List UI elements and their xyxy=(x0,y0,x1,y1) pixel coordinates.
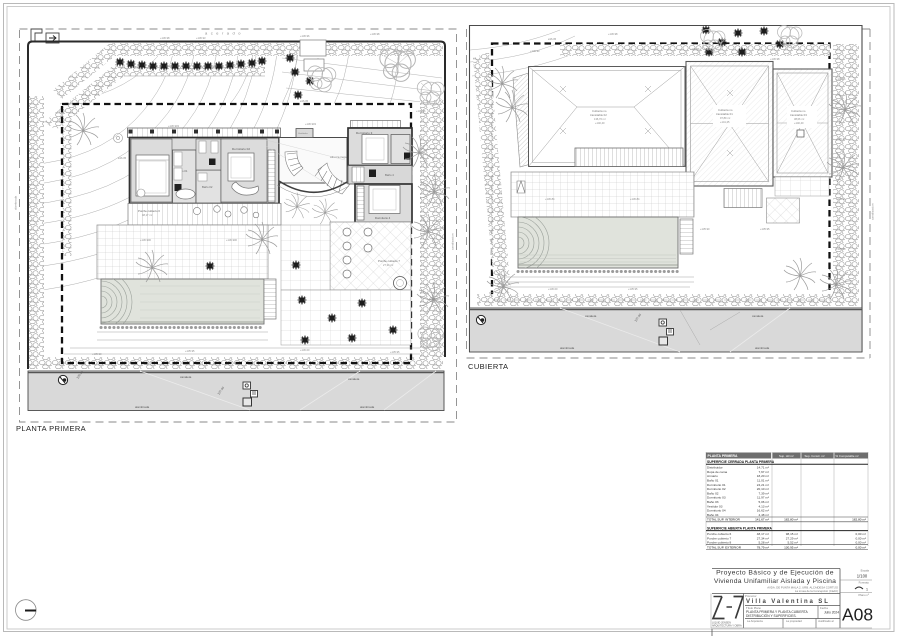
svg-text:Julio 2024: Julio 2024 xyxy=(824,611,839,615)
svg-text:5,28 m²: 5,28 m² xyxy=(759,541,770,545)
svg-text:Vivienda Unifamiliar Aislada y: Vivienda Unifamiliar Aislada y Piscina xyxy=(714,578,836,585)
svg-text:Baño 4: Baño 4 xyxy=(385,173,394,177)
svg-text:Villa Valentina SL: Villa Valentina SL xyxy=(746,599,830,605)
svg-text:0,00 m²: 0,00 m² xyxy=(856,541,867,545)
svg-text:+136.40: +136.40 xyxy=(836,137,846,141)
svg-text:141,67 m²: 141,67 m² xyxy=(755,518,769,522)
svg-text:+136.903: +136.903 xyxy=(305,122,316,126)
svg-text:+136.93: +136.93 xyxy=(530,49,540,53)
svg-text:alambrada: alambrada xyxy=(360,405,375,409)
svg-text:Porche cubierto 6: Porche cubierto 6 xyxy=(138,209,160,213)
svg-text:SUPERFICIE CERRADA PLANTA PRIM: SUPERFICIE CERRADA PLANTA PRIMERA xyxy=(707,460,775,464)
svg-text:La propiedad: La propiedad xyxy=(786,619,802,623)
svg-text:ø16.05: ø16.05 xyxy=(300,99,309,103)
svg-text:CUBIERTA: CUBIERTA xyxy=(468,362,508,371)
svg-text:182,80 m²: 182,80 m² xyxy=(784,518,798,522)
svg-text:alambrada: alambrada xyxy=(755,346,770,350)
svg-text:alambrada: alambrada xyxy=(14,195,18,210)
svg-text:+136.93: +136.93 xyxy=(196,36,206,40)
svg-text:transitable 01: transitable 01 xyxy=(716,112,733,116)
svg-text:+136.96: +136.96 xyxy=(690,47,700,51)
svg-text:canaleta: canaleta xyxy=(348,377,360,381)
svg-text:+136.98: +136.98 xyxy=(160,36,170,40)
svg-text:Fecha: Fecha xyxy=(820,606,828,610)
svg-text:Promotor: Promotor xyxy=(745,594,757,598)
svg-text:Proyecto Básico y de Ejecución: Proyecto Básico y de Ejecución de xyxy=(716,570,834,577)
svg-text:4,48 m²: 4,48 m² xyxy=(759,513,770,517)
svg-text:182,80 m²: 182,80 m² xyxy=(852,518,866,522)
svg-text:DISTRIBUCIÓN Y SUPERFICIES.: DISTRIBUCIÓN Y SUPERFICIES. xyxy=(746,613,797,618)
svg-text:1: 1 xyxy=(866,588,868,592)
svg-text:% Computable m²: % Computable m² xyxy=(836,454,859,458)
svg-text:+135.96: +135.96 xyxy=(836,197,846,201)
svg-text:+135.90: +135.90 xyxy=(430,297,440,301)
svg-text:Porche cubierto 7: Porche cubierto 7 xyxy=(378,259,400,263)
svg-text:Porche cubierto 8: Porche cubierto 8 xyxy=(707,541,732,545)
svg-text:Baño 02: Baño 02 xyxy=(202,185,213,189)
svg-text:+135.90: +135.90 xyxy=(700,227,710,231)
svg-text:Sup. útil m²: Sup. útil m² xyxy=(779,454,794,458)
svg-text:canaleta: canaleta xyxy=(585,314,597,318)
svg-text:canaleta: canaleta xyxy=(180,375,192,379)
svg-text:Dormitorio 4: Dormitorio 4 xyxy=(375,216,391,220)
svg-text:transitable 03: transitable 03 xyxy=(790,113,807,117)
svg-text:Dormitorio 02: Dormitorio 02 xyxy=(232,147,250,151)
svg-text:+135.95: +135.95 xyxy=(760,227,770,231)
svg-text:+135.95: +135.95 xyxy=(390,350,400,354)
svg-text:+136.903: +136.903 xyxy=(168,124,179,128)
svg-text:+136.900: +136.900 xyxy=(226,238,237,242)
svg-text:+136.96: +136.96 xyxy=(300,34,310,38)
svg-text:+135.95: +135.95 xyxy=(185,349,195,353)
svg-text:Vestibular: Vestibular xyxy=(298,132,308,135)
svg-text:+136.98: +136.98 xyxy=(370,32,380,36)
svg-text:+136.96: +136.96 xyxy=(836,77,846,81)
svg-text:ø16.05: ø16.05 xyxy=(548,37,557,41)
svg-text:transitable 02: transitable 02 xyxy=(590,113,607,117)
svg-text:TOTAL SUP. EXTERIOR: TOTAL SUP. EXTERIOR xyxy=(707,545,742,549)
svg-text:A08: A08 xyxy=(842,605,873,625)
svg-text:+141,25: +141,25 xyxy=(720,120,730,124)
svg-text:0,00 m²: 0,00 m² xyxy=(856,545,867,549)
svg-text:+135.95: +135.95 xyxy=(628,287,638,291)
svg-text:Formato: Formato xyxy=(859,581,870,585)
svg-text:+140,40: +140,40 xyxy=(595,121,605,125)
svg-text:alambrada: alambrada xyxy=(560,346,575,350)
svg-text:PLANTA PRIMERA: PLANTA PRIMERA xyxy=(16,424,86,433)
svg-text:+136.84: +136.84 xyxy=(630,197,640,201)
svg-text:38,06 m²: 38,06 m² xyxy=(794,117,804,121)
svg-text:+136.98: +136.98 xyxy=(770,57,780,61)
svg-text:Baño 04: Baño 04 xyxy=(707,513,719,517)
svg-text:+140,40: +140,40 xyxy=(794,121,804,125)
svg-text:ø16.05: ø16.05 xyxy=(118,156,127,160)
svg-text:5,52 m²: 5,52 m² xyxy=(788,541,799,545)
svg-text:48,17 m²: 48,17 m² xyxy=(142,213,152,217)
svg-text:canalizacion: canalizacion xyxy=(871,203,875,220)
svg-text:78,79 m²: 78,79 m² xyxy=(757,545,769,549)
svg-text:alambrada: alambrada xyxy=(135,405,150,409)
svg-text:Escala: Escala xyxy=(861,569,870,573)
svg-text:130,95 m²: 130,95 m² xyxy=(784,545,798,549)
svg-text:+136.900: +136.900 xyxy=(140,238,151,242)
svg-text:+135.90: +135.90 xyxy=(92,352,102,356)
svg-text:SUPERFICIE ABIERTA PLANTA PRIM: SUPERFICIE ABIERTA PLANTA PRIMERA xyxy=(707,526,773,530)
svg-text:136,70 m²: 136,70 m² xyxy=(594,117,606,121)
svg-text:canaleta: canaleta xyxy=(752,314,764,318)
svg-text:La Arquitecta: La Arquitecta xyxy=(747,619,763,623)
svg-text:+136.00: +136.00 xyxy=(300,348,310,352)
svg-text:+136.98: +136.98 xyxy=(608,32,618,36)
svg-text:Sup. Constr. m²: Sup. Constr. m² xyxy=(805,454,825,458)
svg-text:27,34 m²: 27,34 m² xyxy=(383,263,393,267)
svg-text:acerado: acerado xyxy=(205,31,244,36)
svg-text:1/100: 1/100 xyxy=(857,574,868,579)
svg-text:97,89 m²: 97,89 m² xyxy=(720,116,730,120)
svg-text:La Línea de la Concepción (Cád: La Línea de la Concepción (Cádiz) xyxy=(795,589,838,593)
svg-text:canalizacion: canalizacion xyxy=(451,233,455,250)
svg-text:PLANTA PRIMERA: PLANTA PRIMERA xyxy=(708,454,738,458)
svg-text:+136.96: +136.96 xyxy=(416,109,426,113)
svg-text:Plano nº: Plano nº xyxy=(858,593,869,597)
svg-text:+136.84: +136.84 xyxy=(545,197,555,201)
svg-text:+135.90: +135.90 xyxy=(836,247,846,251)
svg-text:ARQUITECTURA Y OBRA: ARQUITECTURA Y OBRA xyxy=(712,625,742,628)
svg-text:TOTAL SUP. INTERIOR: TOTAL SUP. INTERIOR xyxy=(707,518,741,522)
svg-text:+136.00: +136.00 xyxy=(548,287,558,291)
svg-text:Justificado al: Justificado al xyxy=(818,619,834,623)
